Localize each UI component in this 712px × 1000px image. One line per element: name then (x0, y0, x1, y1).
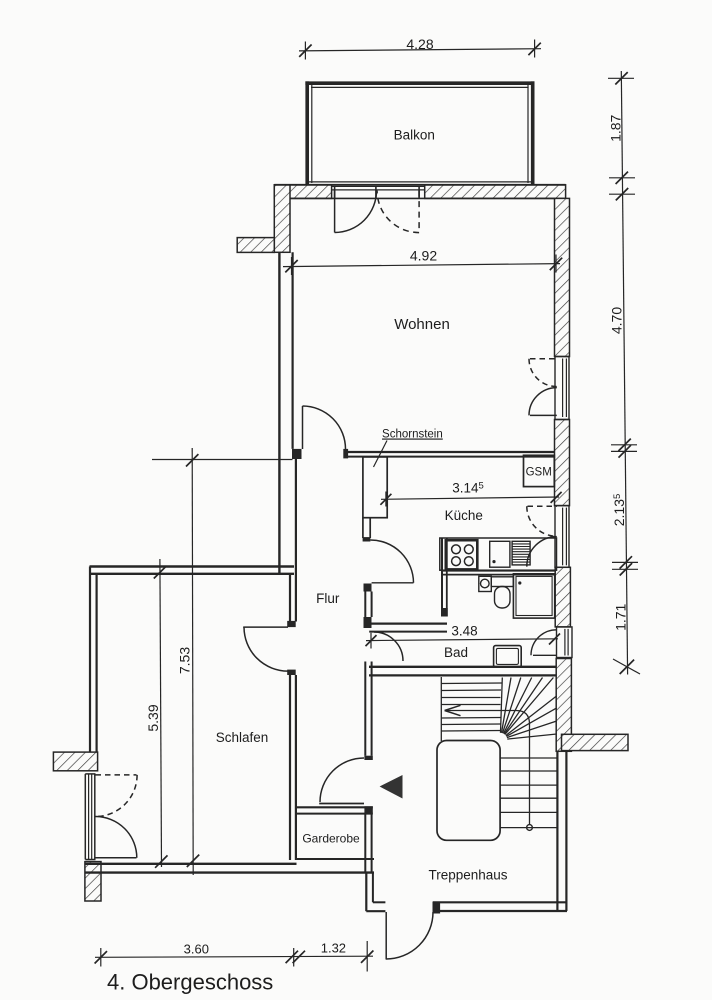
svg-text:3.60: 3.60 (184, 942, 209, 957)
svg-text:4.28: 4.28 (406, 36, 433, 52)
svg-text:1.71: 1.71 (612, 603, 628, 630)
svg-text:4.70: 4.70 (608, 307, 624, 334)
svg-text:GSM: GSM (526, 467, 552, 479)
svg-text:4. Obergeschoss: 4. Obergeschoss (107, 970, 273, 995)
svg-text:Küche: Küche (445, 508, 483, 523)
svg-text:Schornstein: Schornstein (382, 429, 443, 441)
svg-text:Wohnen: Wohnen (394, 316, 450, 333)
svg-text:Balkon: Balkon (394, 128, 435, 143)
svg-text:Schlafen: Schlafen (216, 730, 269, 745)
svg-text:Bad: Bad (444, 645, 468, 660)
svg-text:5.39: 5.39 (145, 704, 161, 731)
svg-text:3.48: 3.48 (451, 624, 477, 639)
svg-text:1.87: 1.87 (607, 114, 623, 141)
svg-text:4.92: 4.92 (410, 248, 437, 264)
svg-text:7.53: 7.53 (177, 647, 193, 674)
svg-text:1.32: 1.32 (321, 941, 346, 956)
svg-text:Garderobe: Garderobe (302, 832, 360, 846)
svg-text:Treppenhaus: Treppenhaus (428, 868, 507, 883)
svg-text:Flur: Flur (316, 591, 340, 606)
